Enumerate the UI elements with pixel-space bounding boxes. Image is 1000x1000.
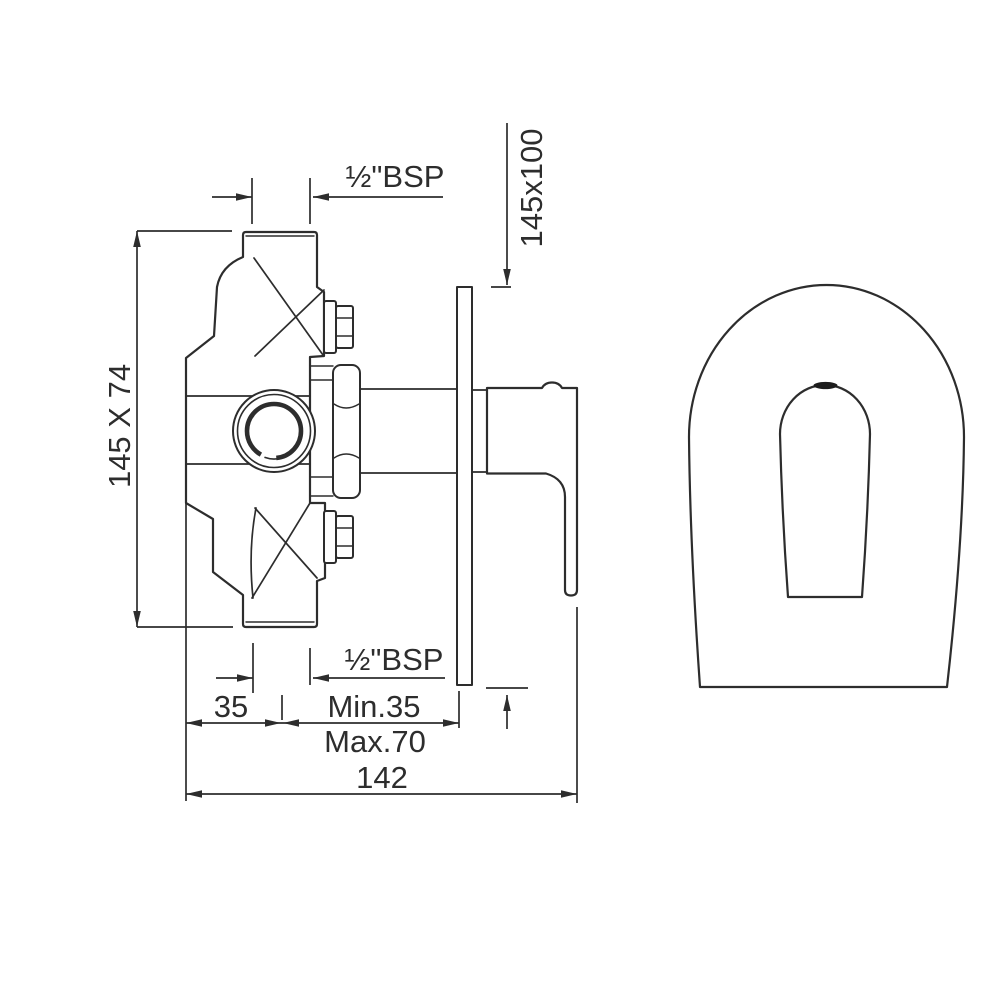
drawing-canvas: ½"BSP 145 X 74 145x100 ½"BSP	[0, 0, 1000, 1000]
dim-label-body-size: 145 X 74	[102, 364, 137, 488]
dim-label-wall-min: Min.35	[327, 689, 420, 724]
handle-front	[780, 385, 870, 597]
handle-hub-lines	[472, 390, 487, 472]
outlet-boss	[333, 365, 360, 498]
inlet-nut-top	[324, 301, 353, 353]
handle-side	[487, 383, 577, 596]
dim-label-plate-size: 145x100	[514, 129, 549, 248]
dim-label-total-depth: 142	[356, 760, 408, 795]
technical-drawing: ½"BSP 145 X 74 145x100 ½"BSP	[0, 0, 1000, 1000]
spindle-sleeve	[360, 389, 457, 473]
dim-top-thread: ½"BSP	[212, 159, 444, 224]
dim-label-wall-max: Max.70	[324, 724, 426, 759]
dim-label-bottom-thread: ½"BSP	[345, 642, 444, 677]
dim-label-offset-35: 35	[214, 689, 248, 724]
screw-notch	[814, 382, 838, 389]
dim-label-top-thread: ½"BSP	[346, 159, 445, 194]
inlet-nut-bottom	[324, 511, 353, 563]
wall-plate-side	[457, 287, 472, 685]
front-view	[689, 285, 964, 687]
side-view	[186, 232, 577, 685]
cartridge-circle	[233, 390, 315, 472]
dim-bottom-thread: ½"BSP	[216, 642, 445, 693]
